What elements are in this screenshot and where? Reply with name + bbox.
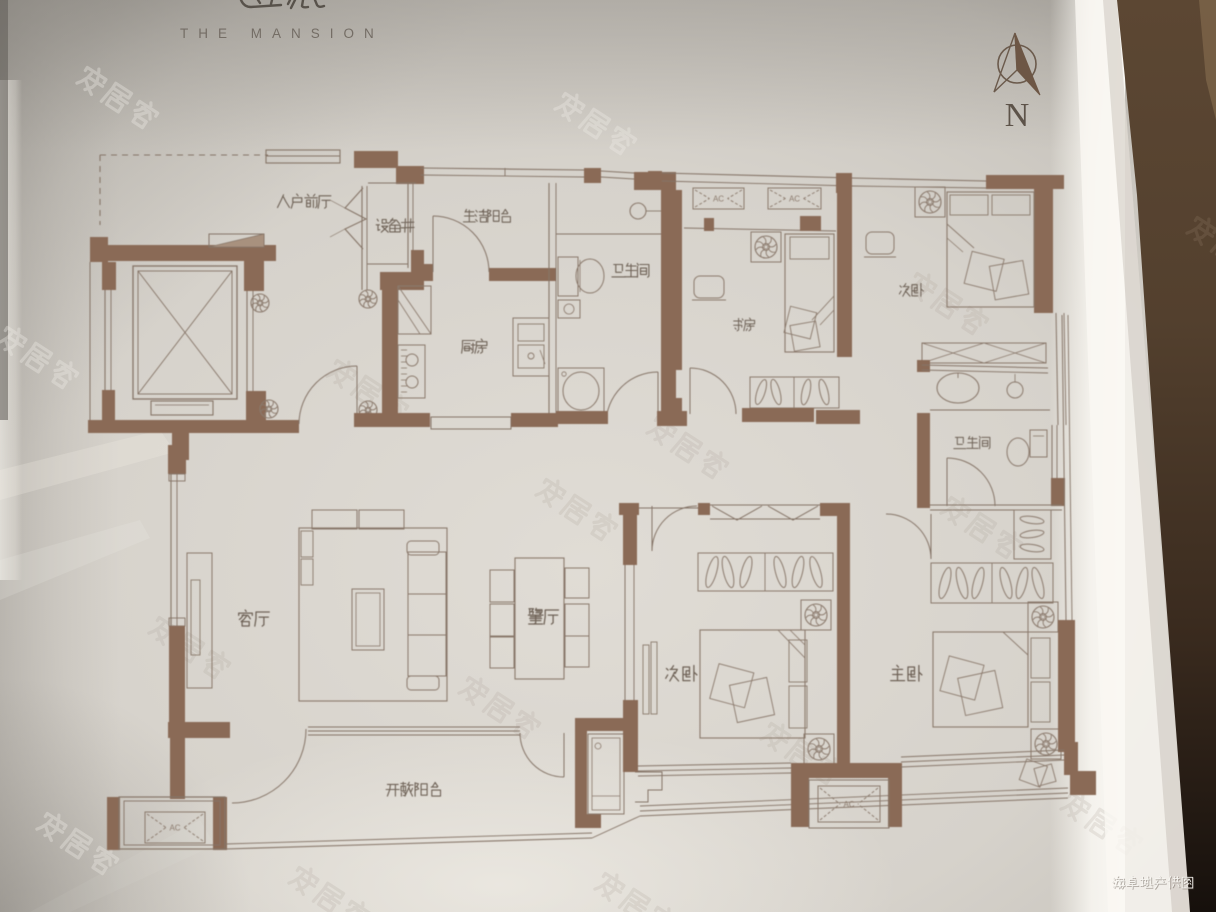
svg-text:AC: AC	[789, 194, 800, 203]
svg-text:AC: AC	[713, 194, 724, 203]
svg-text:AC: AC	[169, 823, 180, 832]
svg-text:N: N	[1005, 97, 1030, 134]
svg-text:AC: AC	[843, 800, 854, 809]
svg-text:THE MANSION: THE MANSION	[180, 26, 384, 41]
